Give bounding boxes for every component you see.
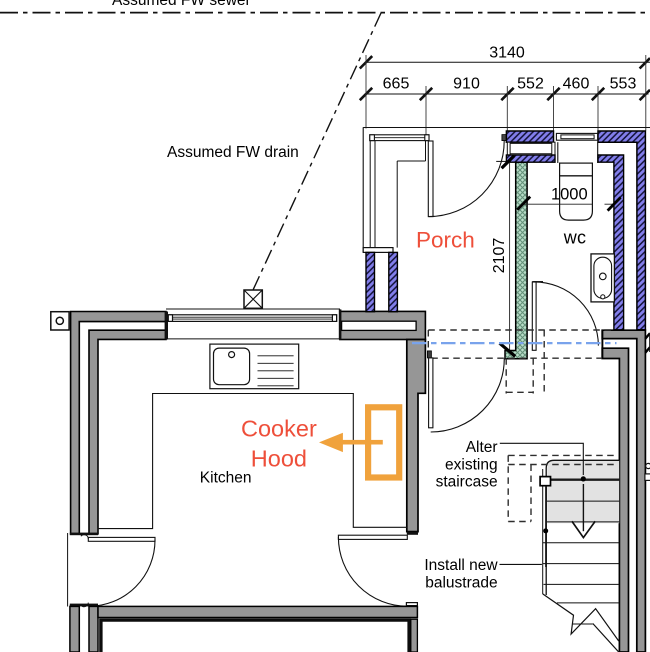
svg-text:Porch: Porch <box>416 227 475 252</box>
svg-text:2107: 2107 <box>491 238 508 274</box>
svg-text:552: 552 <box>517 76 544 93</box>
svg-text:1000: 1000 <box>551 185 588 203</box>
svg-text:665: 665 <box>383 76 410 93</box>
svg-text:Cooker: Cooker <box>241 416 317 442</box>
svg-text:Alter: Alter <box>466 439 498 456</box>
svg-text:3140: 3140 <box>489 45 525 62</box>
svg-text:Assumed FW drain: Assumed FW drain <box>167 144 299 161</box>
svg-text:wc: wc <box>563 227 587 247</box>
svg-text:Kitchen: Kitchen <box>200 469 252 486</box>
svg-text:Install new: Install new <box>424 557 498 574</box>
svg-text:balustrade: balustrade <box>425 574 497 591</box>
svg-text:Hood: Hood <box>251 446 307 472</box>
svg-text:553: 553 <box>610 76 637 93</box>
svg-text:Assumed FW sewer: Assumed FW sewer <box>112 0 251 9</box>
svg-text:910: 910 <box>453 76 480 93</box>
svg-text:staircase: staircase <box>436 473 498 490</box>
svg-text:460: 460 <box>563 76 590 93</box>
svg-text:existing: existing <box>445 456 498 473</box>
